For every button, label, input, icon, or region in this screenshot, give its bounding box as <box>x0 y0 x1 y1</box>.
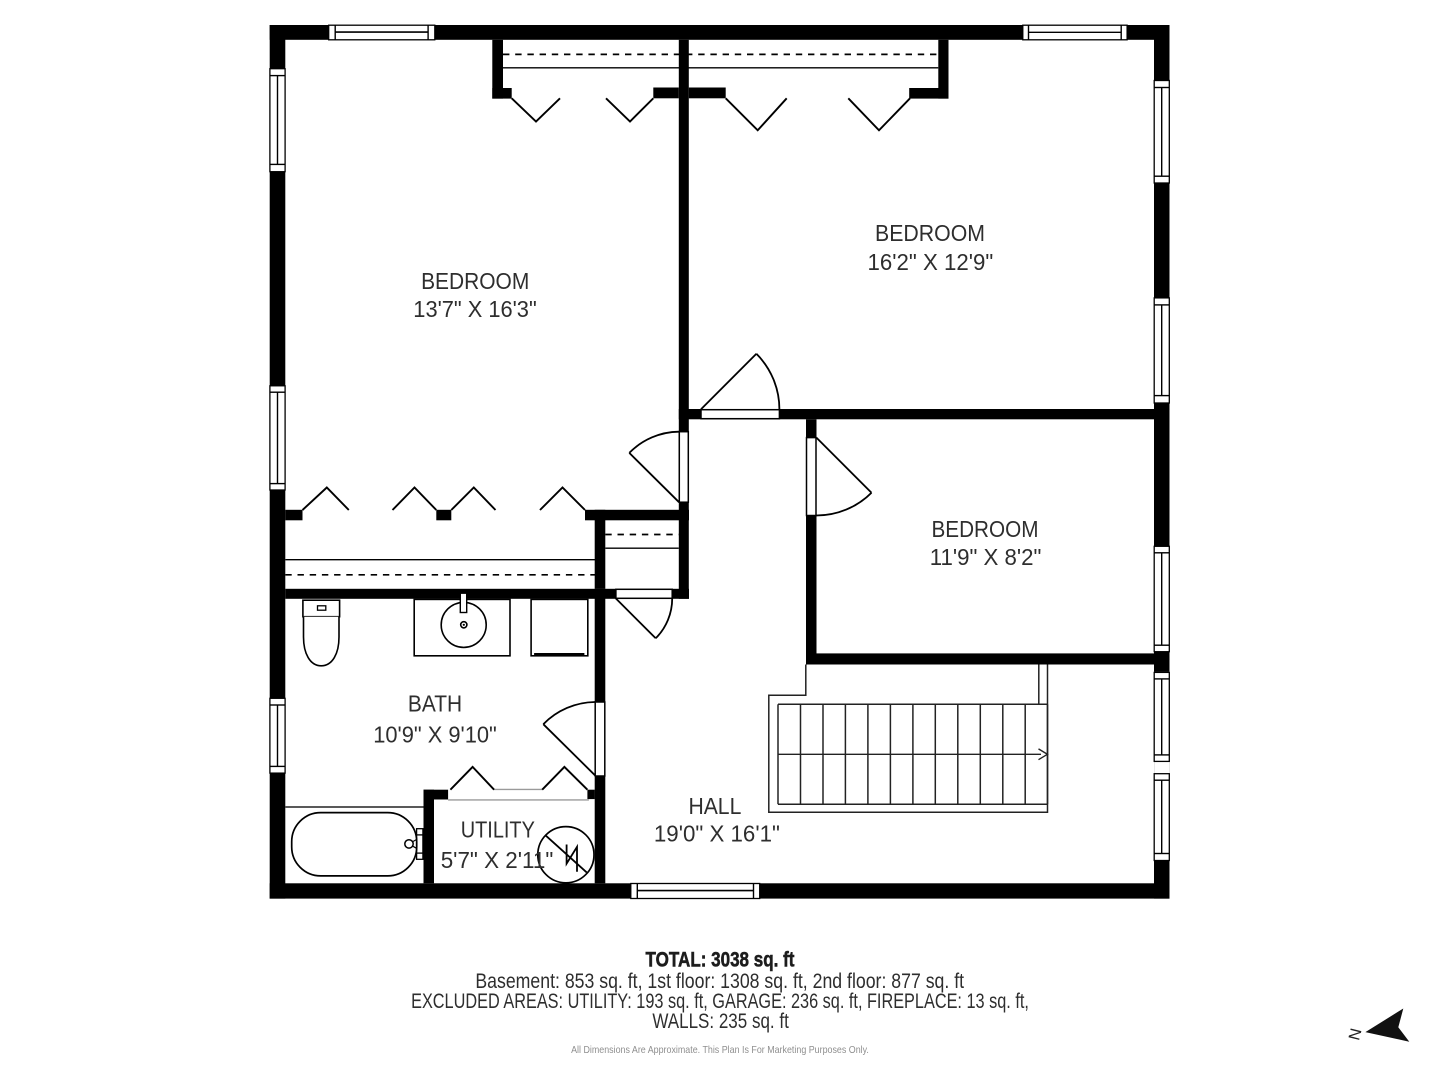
svg-text:WALLS: 235 sq. ft: WALLS: 235 sq. ft <box>652 1010 789 1033</box>
svg-text:N: N <box>1346 1027 1365 1042</box>
svg-text:11'9" X 8'2": 11'9" X 8'2" <box>930 544 1042 570</box>
svg-text:UTILITY: UTILITY <box>461 817 535 843</box>
svg-text:5'7" X 2'11": 5'7" X 2'11" <box>441 847 554 873</box>
svg-text:HALL: HALL <box>688 793 741 819</box>
svg-text:BEDROOM: BEDROOM <box>421 268 529 294</box>
svg-text:TOTAL: 3038 sq. ft: TOTAL: 3038 sq. ft <box>646 948 795 971</box>
svg-text:All Dimensions Are Approximate: All Dimensions Are Approximate. This Pla… <box>571 1044 869 1056</box>
svg-text:BEDROOM: BEDROOM <box>931 516 1038 542</box>
svg-text:19'0" X 16'1": 19'0" X 16'1" <box>654 821 780 847</box>
svg-text:10'9" X 9'10": 10'9" X 9'10" <box>373 722 497 748</box>
svg-text:BEDROOM: BEDROOM <box>875 220 985 246</box>
svg-text:13'7" X 16'3": 13'7" X 16'3" <box>413 296 536 322</box>
svg-text:16'2" X 12'9": 16'2" X 12'9" <box>868 249 994 275</box>
svg-text:BATH: BATH <box>408 691 462 717</box>
